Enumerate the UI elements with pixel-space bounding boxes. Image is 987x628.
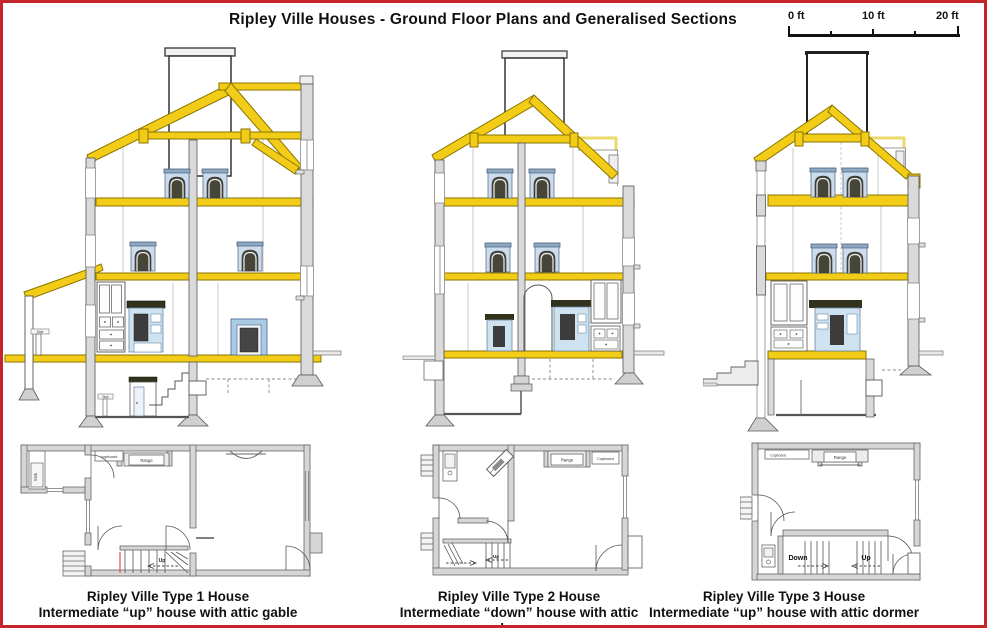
stairs: Down Up xyxy=(788,541,881,574)
front-window xyxy=(231,319,267,355)
cellar-sink-label: Sink xyxy=(102,395,109,399)
kitchen-range xyxy=(127,301,165,352)
left-wall xyxy=(703,161,778,431)
chimney-cap xyxy=(502,51,567,58)
chimney-cap xyxy=(165,48,235,56)
caption-type2-title: Ripley Ville Type 2 House xyxy=(383,589,655,605)
scale-bar: 0 ft 10 ft 20 ft xyxy=(788,11,960,37)
drawing-sheet: Ripley Ville Houses - Ground Floor Plans… xyxy=(0,0,987,628)
cupboard xyxy=(591,280,621,351)
plan-sink xyxy=(443,451,457,481)
plan-type2: Range Cupboard Up xyxy=(408,433,718,588)
page-title: Ripley Ville Houses - Ground Floor Plans… xyxy=(153,11,813,29)
right-wall xyxy=(292,76,341,386)
section-type2 xyxy=(398,43,708,433)
plan-up-label: Up xyxy=(861,555,870,562)
caption-type1-title: Ripley Ville Type 1 House xyxy=(18,589,318,605)
caption-type3-title: Ripley Ville Type 3 House xyxy=(648,589,920,605)
scale-tick xyxy=(788,26,790,37)
scale-label-20ft: 20 ft xyxy=(936,10,959,22)
walls xyxy=(433,445,628,575)
plan-sink-label: Sink xyxy=(33,472,38,481)
plan-up-label: Up xyxy=(493,554,499,559)
plan-sink: Sink xyxy=(29,451,45,489)
caption-type1: Ripley Ville Type 1 House Intermediate “… xyxy=(18,589,318,621)
dresser xyxy=(97,282,125,352)
plan-range-label: Range xyxy=(561,458,574,463)
kitchen-range xyxy=(551,300,591,351)
kitchen-range xyxy=(809,300,862,351)
door-arcs xyxy=(91,455,310,570)
plan-up-label: Up xyxy=(159,558,166,564)
scale-tick xyxy=(872,29,874,37)
roof-beams xyxy=(754,105,920,188)
plan-range-label: Range xyxy=(834,455,847,460)
plan-cupboard-label: Cupboard xyxy=(770,454,786,458)
plan-cupboard-label: Cupboard xyxy=(597,457,614,461)
scale-tick xyxy=(914,31,916,37)
section-type1: Sink Sink xyxy=(3,43,348,433)
stairs: Up xyxy=(120,550,188,573)
arch-opening xyxy=(524,285,552,351)
caption-type2: Ripley Ville Type 2 House Intermediate “… xyxy=(383,589,655,628)
caption-type1-subtitle: Intermediate “up” house with attic gable xyxy=(18,605,318,621)
basement xyxy=(768,359,901,417)
scullery-range xyxy=(485,314,514,351)
plan-down-label: Down xyxy=(788,555,807,562)
scale-tick xyxy=(830,31,832,37)
sink-label: Sink xyxy=(37,330,44,334)
scale-bar-line xyxy=(788,34,960,37)
walls xyxy=(752,443,920,580)
plan-type3: Cupboard Range xyxy=(740,433,987,588)
caption-type3: Ripley Ville Type 3 House Intermediate “… xyxy=(648,589,920,621)
plan-range-label: Range xyxy=(140,458,153,463)
door-arcs xyxy=(439,498,622,571)
scale-label-0ft: 0 ft xyxy=(788,10,805,22)
stairs: Up xyxy=(444,543,510,568)
caption-type3-subtitle: Intermediate “up” house with attic dorme… xyxy=(648,605,920,621)
section-type3 xyxy=(703,43,987,433)
scale-tick xyxy=(957,26,959,37)
outshot: Sink xyxy=(19,296,49,400)
caption-type2-subtitle: Intermediate “down” house with attic dor… xyxy=(383,605,655,628)
scale-label-10ft: 10 ft xyxy=(862,10,885,22)
cupboard xyxy=(771,281,807,351)
plan-type1: Sink cupboard Range xyxy=(13,433,333,588)
closet-sink xyxy=(762,545,775,567)
